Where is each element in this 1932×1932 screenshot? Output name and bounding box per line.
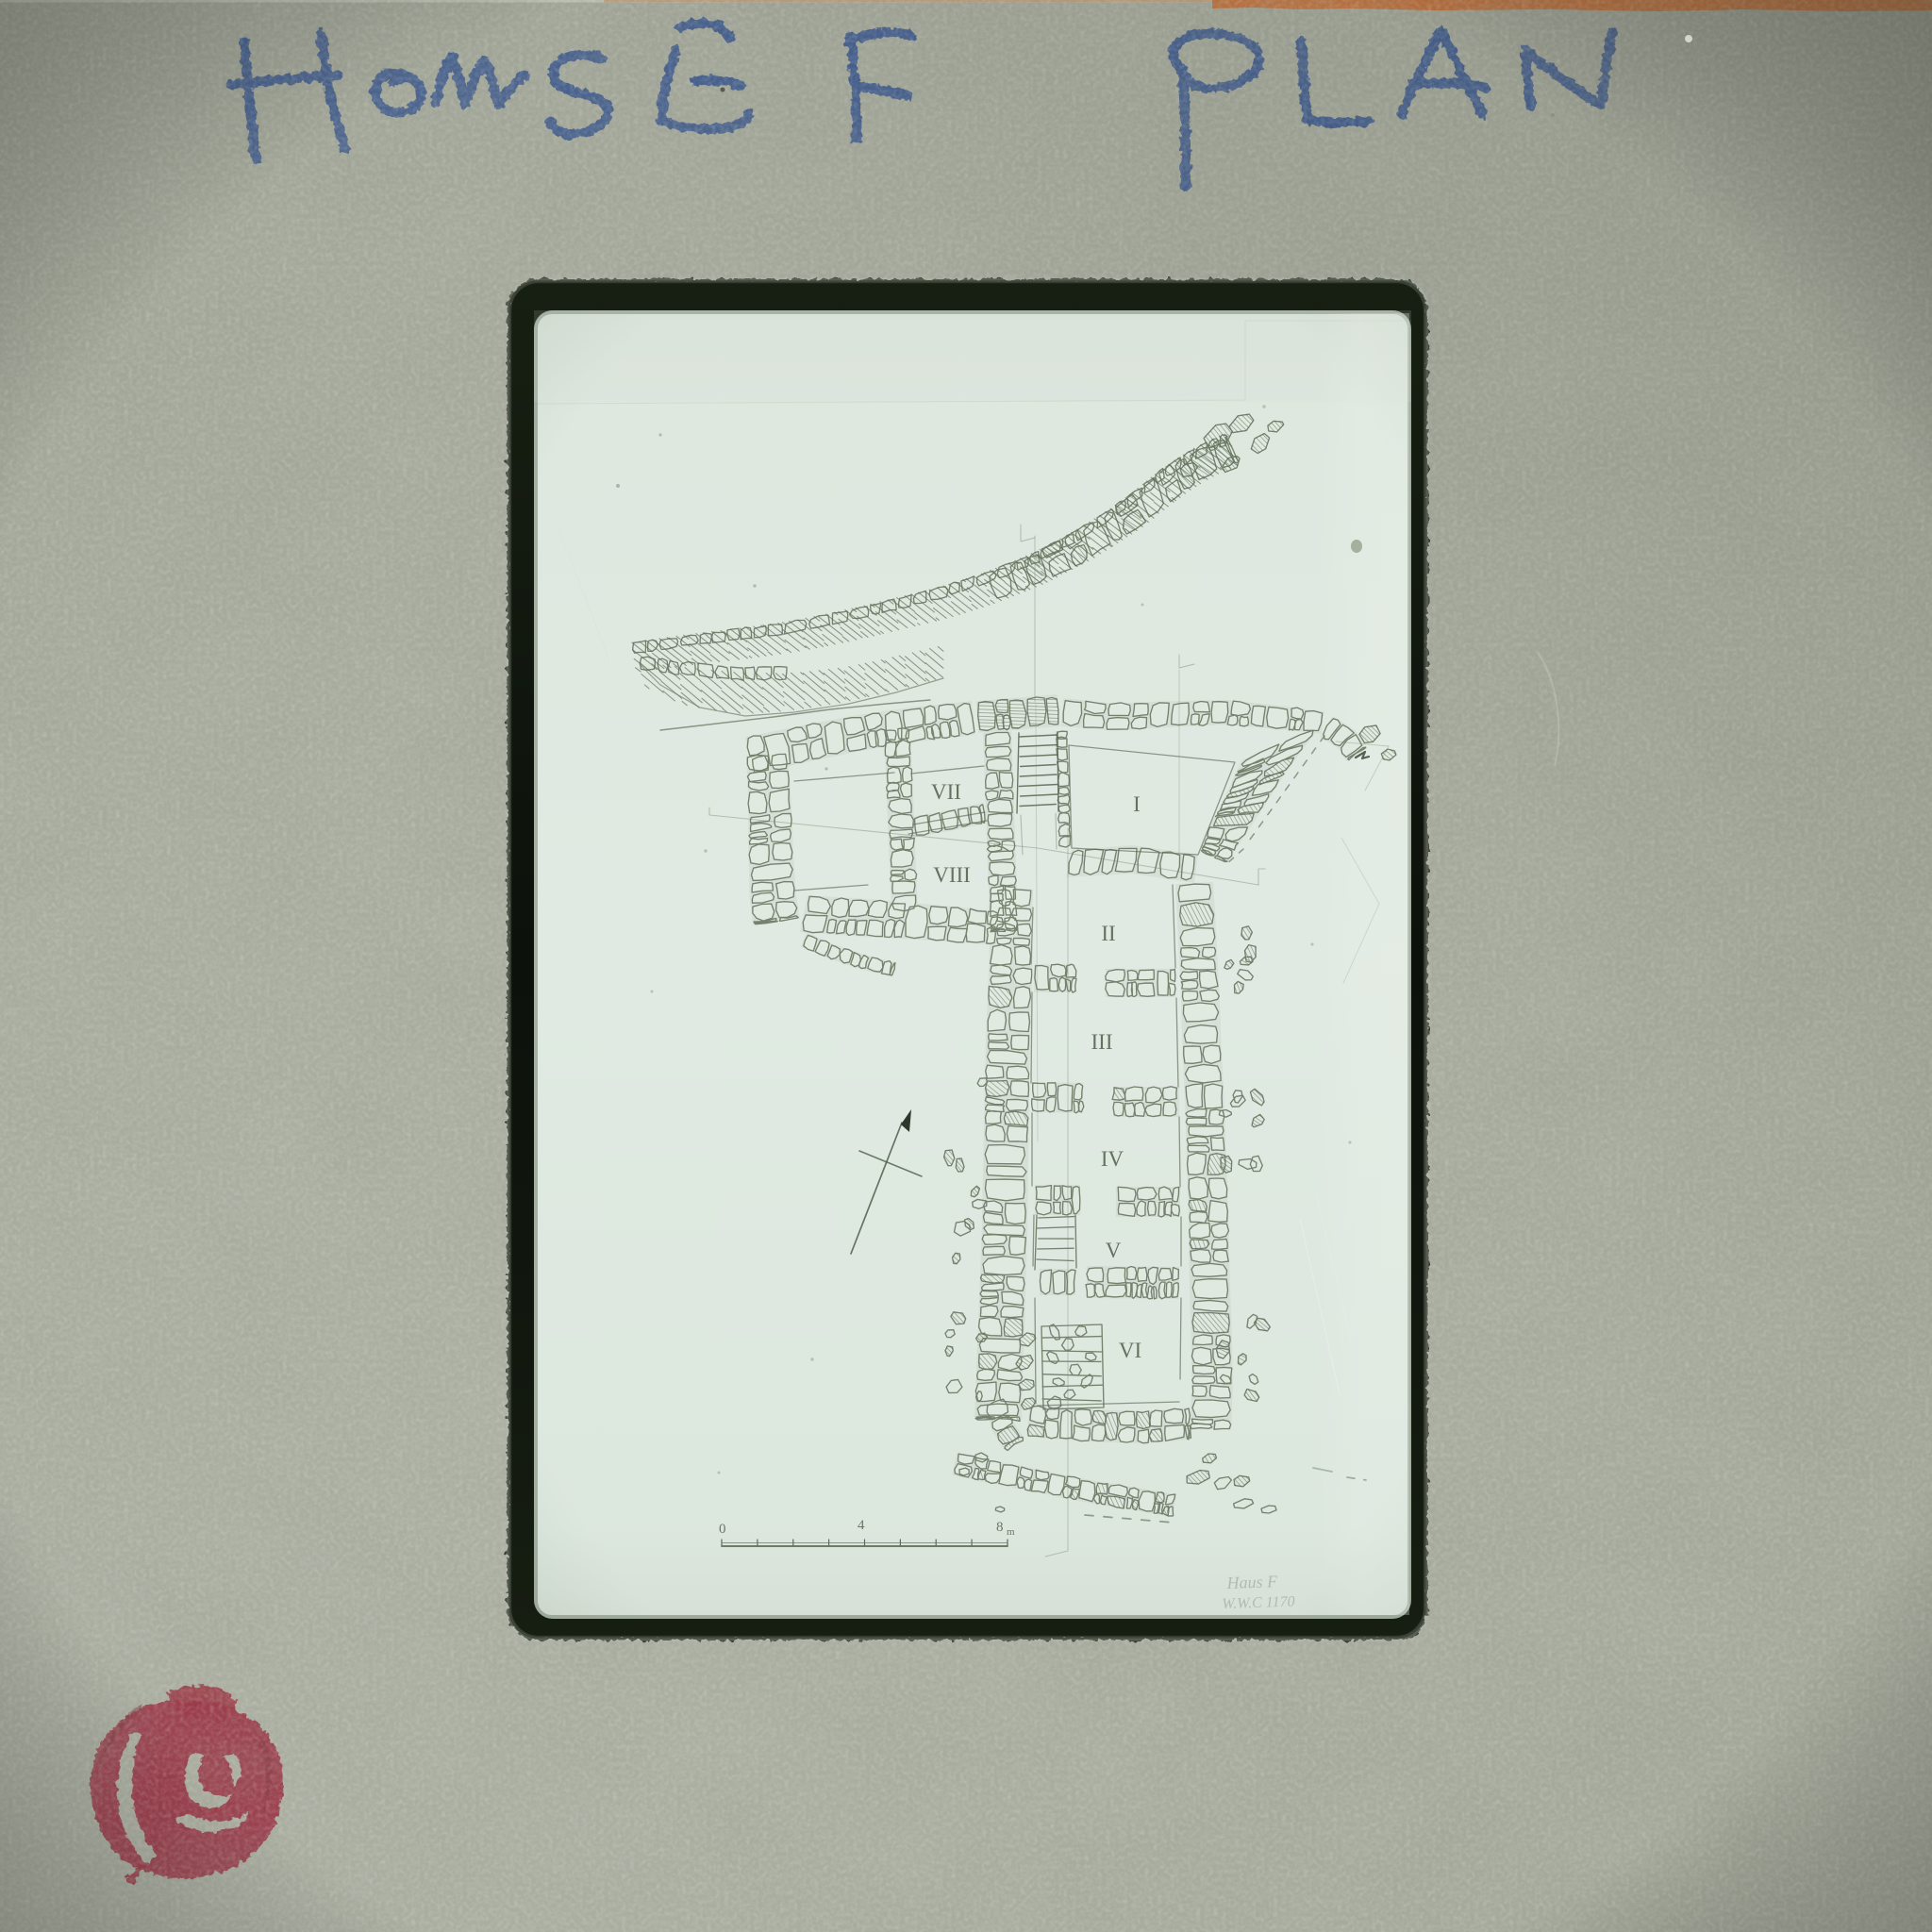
svg-text:0: 0 (719, 1522, 726, 1537)
svg-text:VII: VII (931, 780, 961, 804)
svg-text:Haus F: Haus F (1225, 1572, 1278, 1592)
svg-text:m: m (1007, 1526, 1015, 1538)
svg-text:II: II (1101, 922, 1115, 945)
svg-text:VIII: VIII (933, 863, 971, 887)
svg-text:4: 4 (858, 1518, 865, 1533)
svg-text:IV: IV (1101, 1147, 1124, 1171)
svg-text:8: 8 (996, 1520, 1004, 1535)
svg-text:W.W.C 1170: W.W.C 1170 (1222, 1593, 1295, 1612)
svg-text:V: V (1106, 1239, 1122, 1262)
svg-text:I: I (1133, 792, 1141, 816)
svg-text:VI: VI (1119, 1339, 1141, 1362)
svg-text:III: III (1091, 1030, 1113, 1054)
